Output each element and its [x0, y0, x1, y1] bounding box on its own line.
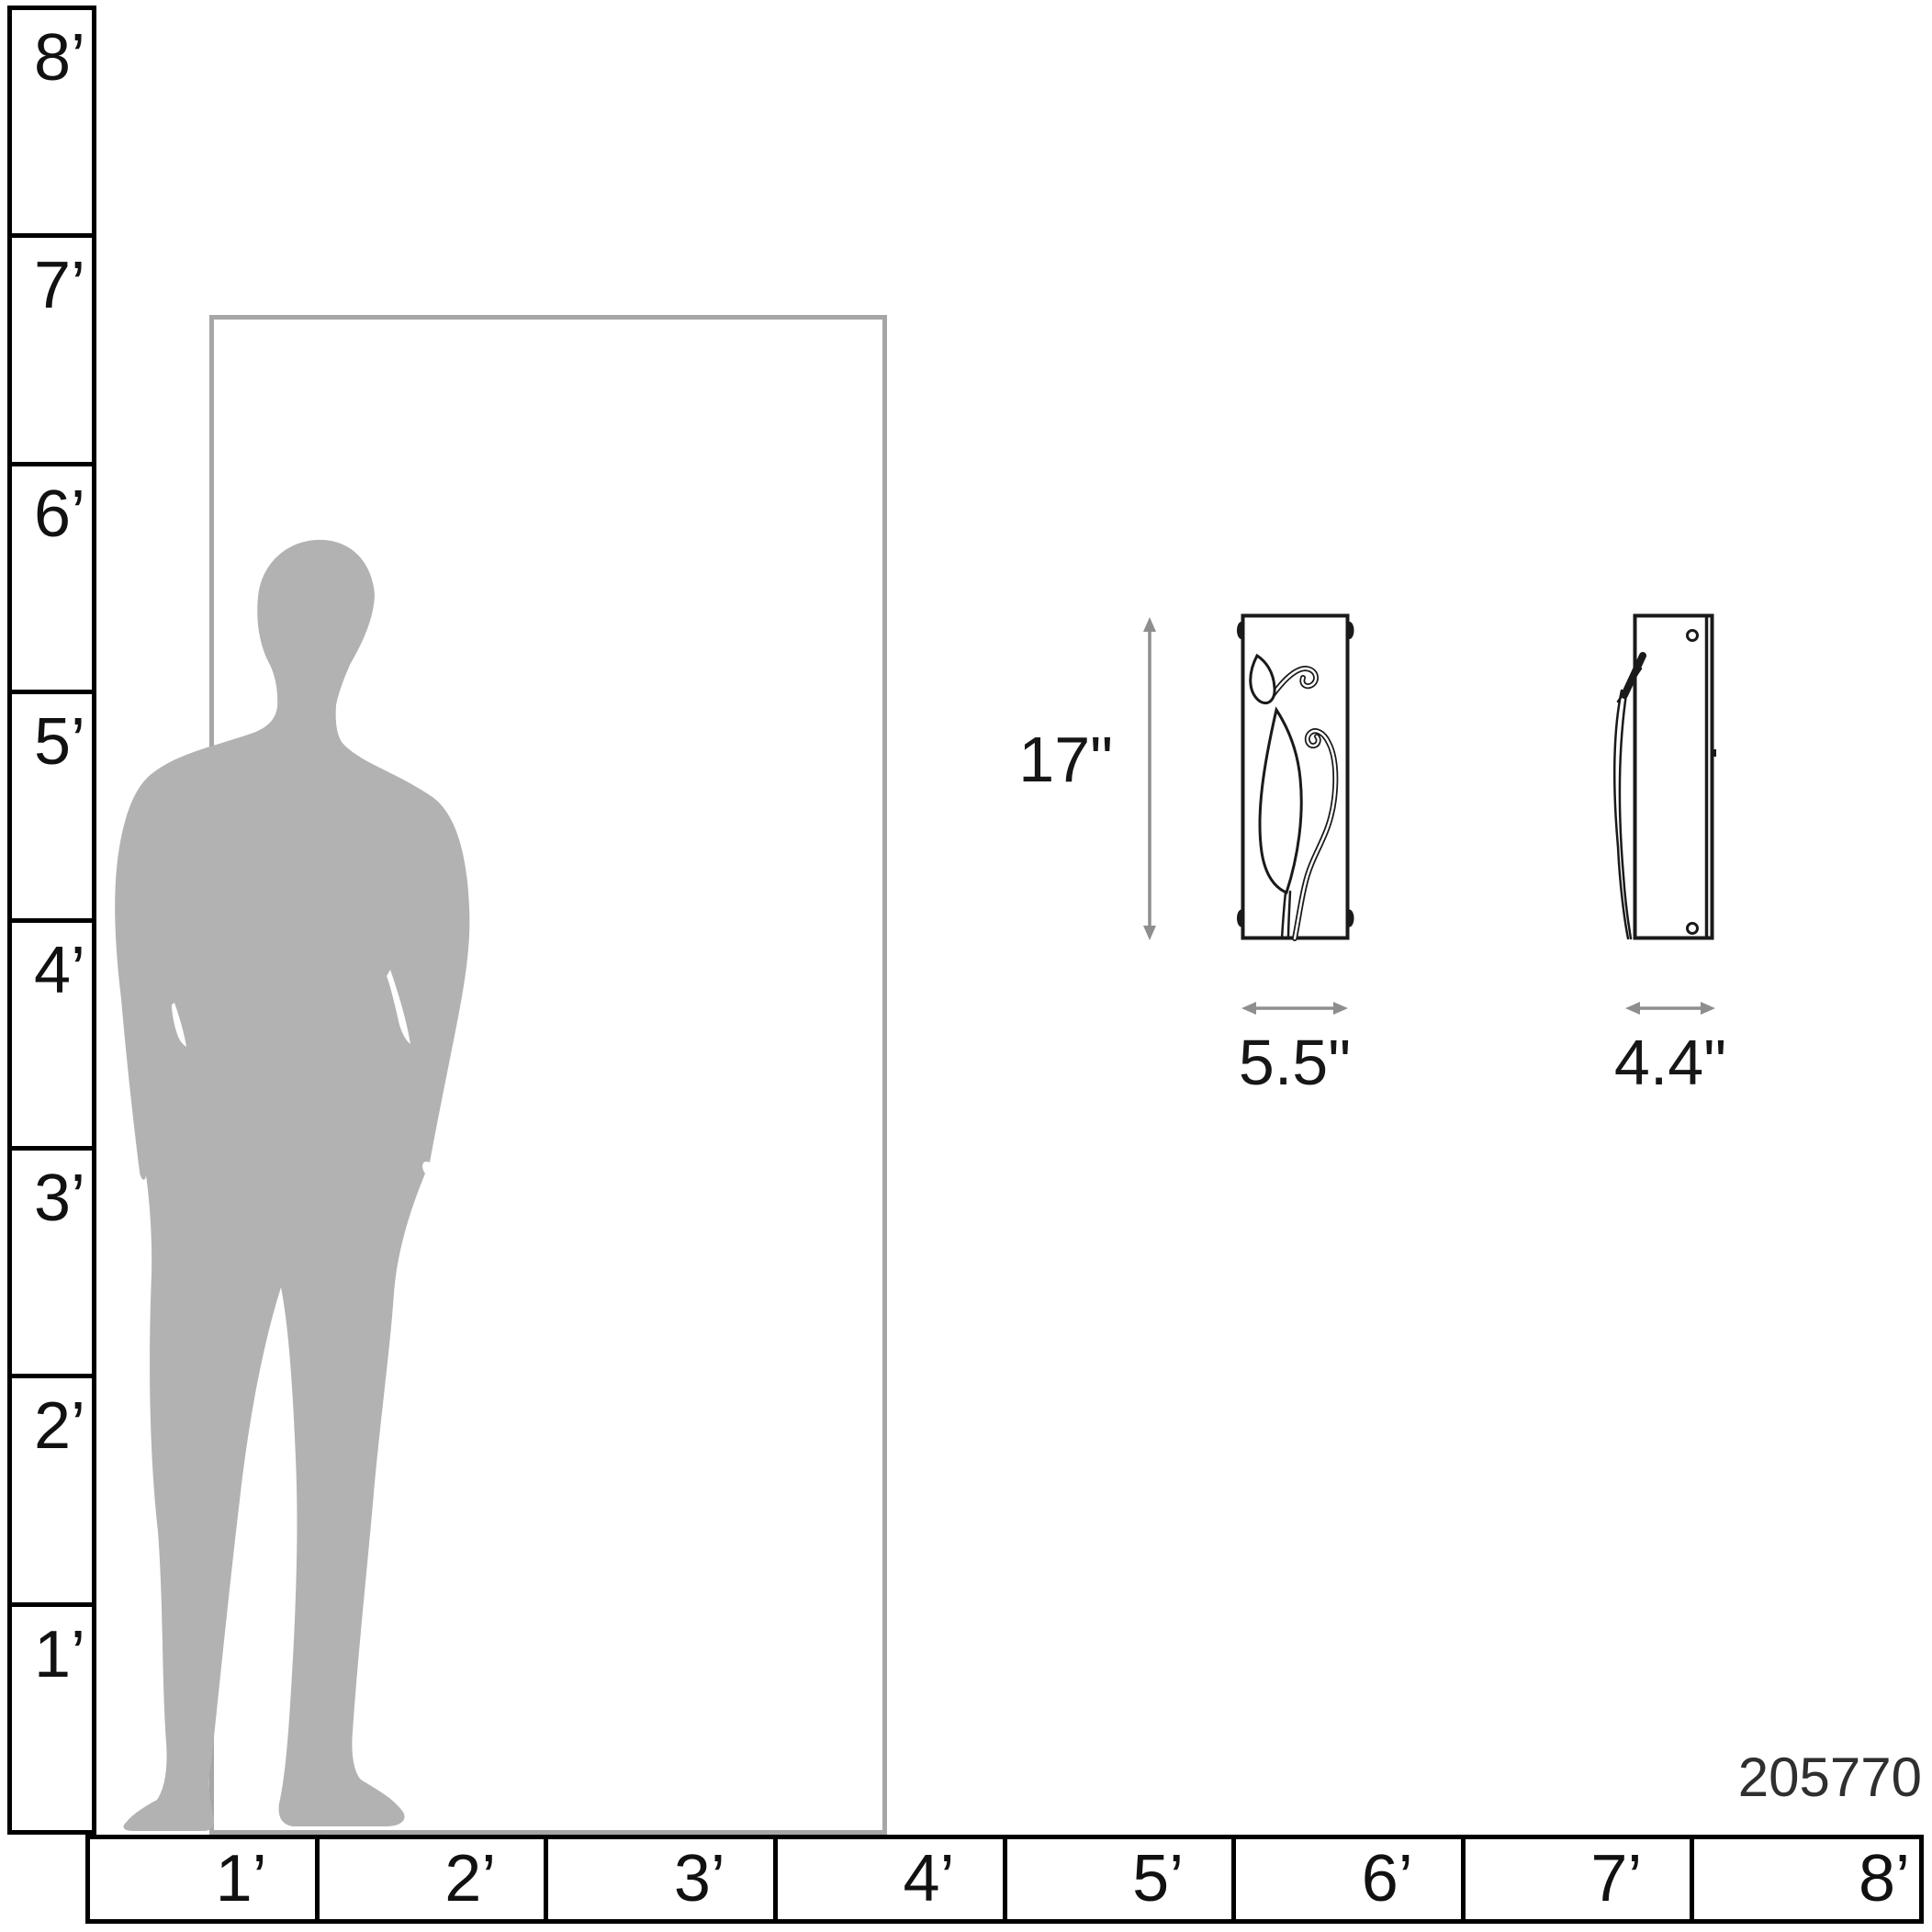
horizontal-ruler-label: 1’	[90, 1839, 315, 1918]
depth-dimension-label: 4.4"	[1578, 1030, 1763, 1095]
sconce-front-view-drawing	[1237, 610, 1354, 946]
horizontal-ruler-cell: 6’	[1236, 1839, 1466, 1919]
vertical-ruler-label: 4’	[12, 923, 92, 1004]
mounting-screw-top	[1688, 631, 1698, 641]
vertical-ruler-cell: 8’	[12, 10, 92, 238]
horizontal-ruler-cell: 1’	[90, 1839, 320, 1919]
sconce-side-view-drawing	[1607, 610, 1722, 946]
wall-mount-stub	[1713, 749, 1717, 757]
horizontal-ruler-label: 6’	[1236, 1839, 1461, 1918]
vertical-ruler-cell: 5’	[12, 694, 92, 922]
vertical-ruler-label: 5’	[12, 694, 92, 775]
vertical-ruler-label: 1’	[12, 1607, 92, 1688]
mounting-screw-bottom	[1688, 924, 1698, 934]
human-silhouette	[108, 538, 492, 1835]
vertical-ruler-cell: 1’	[12, 1607, 92, 1830]
horizontal-ruler-cell: 3’	[548, 1839, 778, 1919]
horizontal-ruler-label: 2’	[320, 1839, 545, 1918]
vertical-ruler-label: 2’	[12, 1378, 92, 1459]
height-dimension-arrow-icon	[1137, 615, 1163, 942]
depth-dimension-arrow-icon	[1623, 995, 1717, 1021]
vertical-ruler-cell: 3’	[12, 1151, 92, 1378]
vertical-ruler-label: 6’	[12, 466, 92, 547]
vertical-ruler-cell: 7’	[12, 238, 92, 466]
vertical-ruler-label: 3’	[12, 1151, 92, 1231]
width-dimension-label: 5.5"	[1202, 1030, 1387, 1095]
horizontal-ruler-cell: 7’	[1466, 1839, 1695, 1919]
horizontal-ruler-label: 5’	[1007, 1839, 1232, 1918]
silhouette-body	[115, 540, 469, 1831]
width-dimension-arrow-icon	[1240, 995, 1350, 1021]
horizontal-ruler-label: 7’	[1466, 1839, 1690, 1918]
horizontal-ruler-cell: 8’	[1694, 1839, 1919, 1919]
horizontal-ruler-cell: 2’	[320, 1839, 549, 1919]
horizontal-ruler-label: 4’	[778, 1839, 1003, 1918]
size-comparison-diagram: 8’ 7’ 6’ 5’ 4’ 3’ 2’ 1’	[0, 0, 1932, 1932]
glass-panel-side	[1635, 616, 1713, 938]
horizontal-feet-ruler: 1’ 2’ 3’ 4’ 5’ 6’ 7’ 8’	[85, 1835, 1924, 1924]
vertical-ruler-label: 7’	[12, 238, 92, 319]
vertical-ruler-cell: 2’	[12, 1378, 92, 1606]
horizontal-ruler-label: 3’	[548, 1839, 773, 1918]
vertical-ruler-cell: 6’	[12, 466, 92, 694]
height-dimension-label: 17"	[920, 727, 1113, 792]
horizontal-ruler-cell: 4’	[778, 1839, 1007, 1919]
horizontal-ruler-cell: 5’	[1007, 1839, 1237, 1919]
vertical-ruler-label: 8’	[12, 10, 92, 91]
product-number: 205770	[1555, 1750, 1922, 1805]
horizontal-ruler-label: 8’	[1694, 1839, 1919, 1918]
vertical-ruler-cell: 4’	[12, 923, 92, 1151]
vertical-feet-ruler: 8’ 7’ 6’ 5’ 4’ 3’ 2’ 1’	[7, 6, 96, 1835]
